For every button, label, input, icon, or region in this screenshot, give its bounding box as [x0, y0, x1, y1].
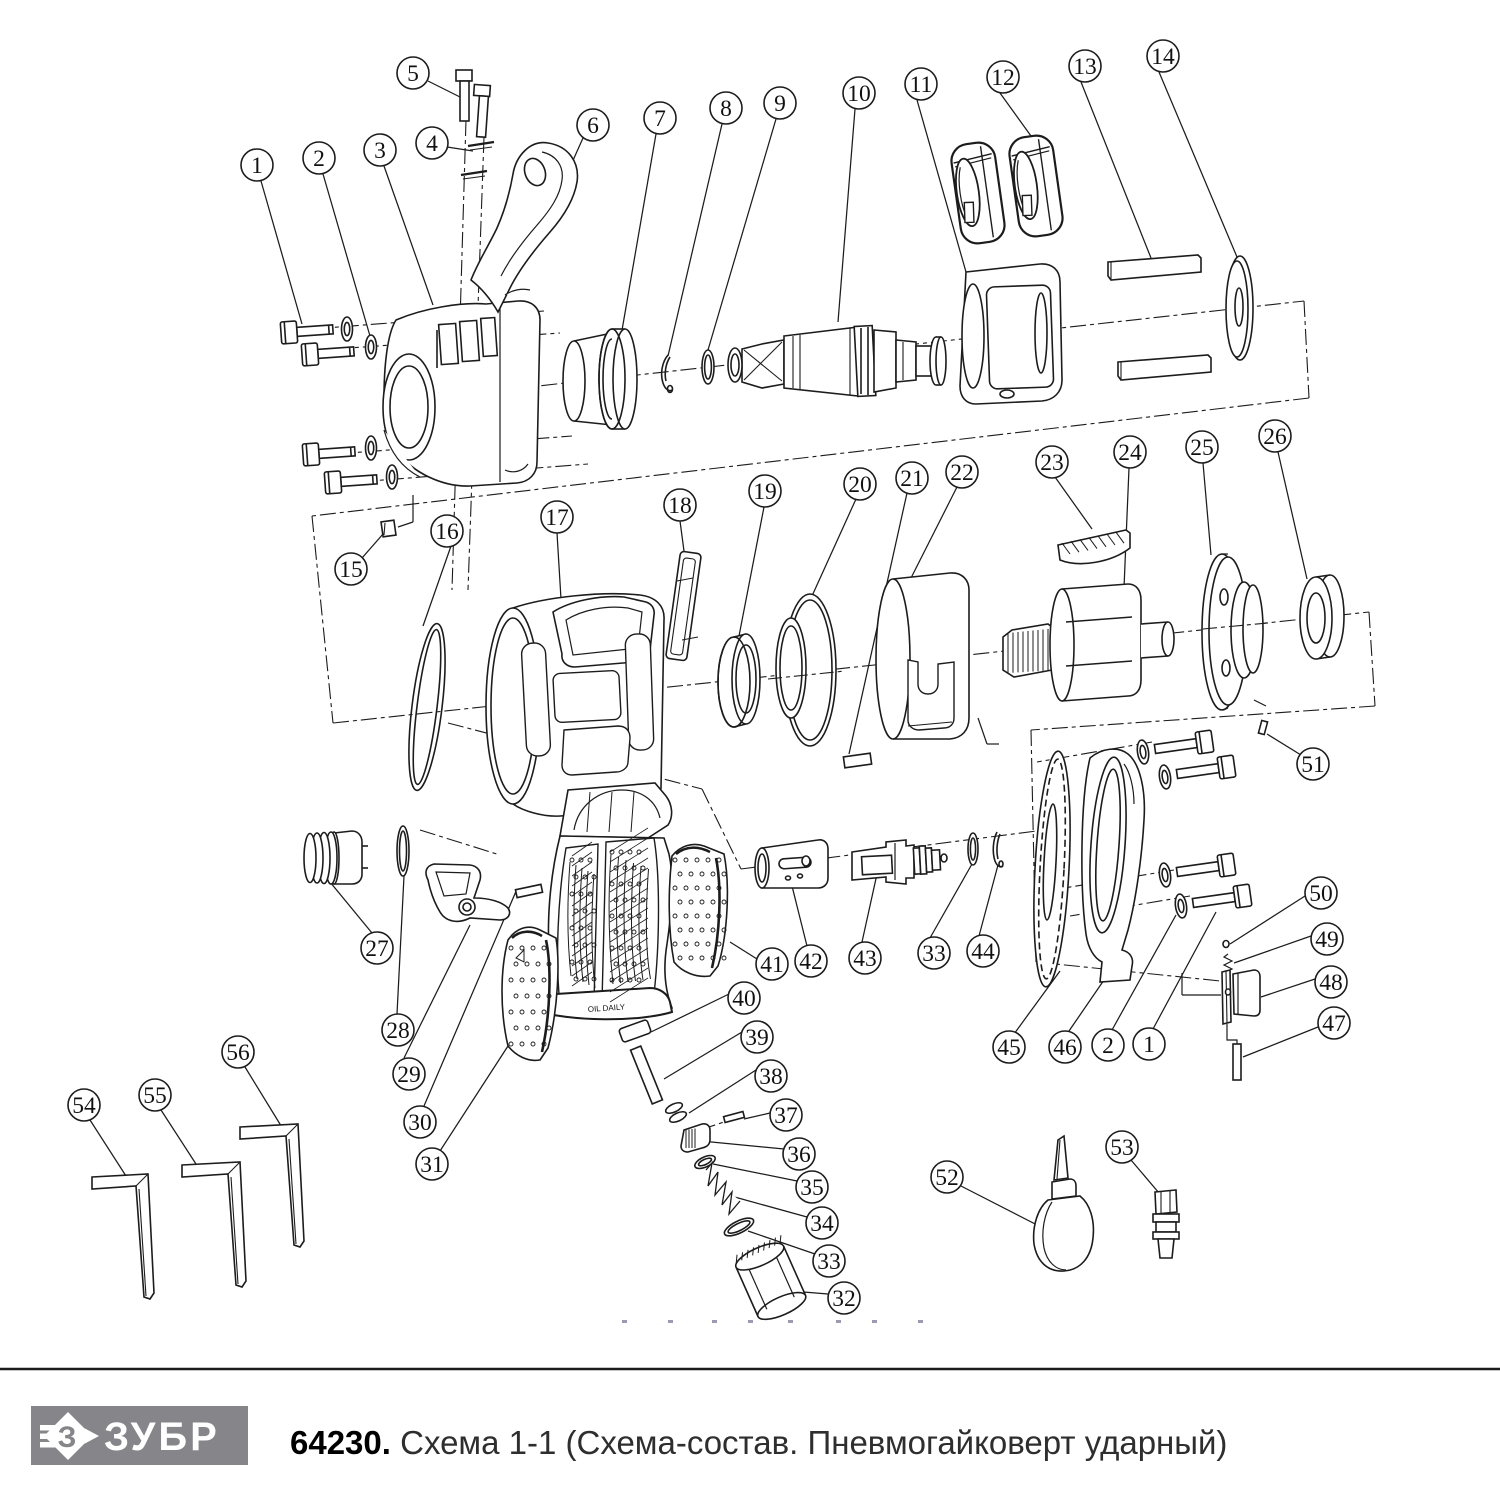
- svg-text:17: 17: [545, 505, 569, 531]
- svg-text:21: 21: [900, 466, 924, 492]
- svg-text:13: 13: [1073, 54, 1097, 80]
- svg-text:40: 40: [732, 986, 756, 1012]
- svg-text:9: 9: [774, 91, 786, 117]
- svg-text:10: 10: [847, 81, 871, 107]
- svg-text:23: 23: [1040, 450, 1064, 476]
- svg-text:56: 56: [226, 1040, 250, 1066]
- svg-text:30: 30: [408, 1110, 432, 1136]
- svg-text:51: 51: [1301, 752, 1325, 778]
- svg-text:7: 7: [654, 106, 666, 132]
- svg-text:50: 50: [1309, 881, 1333, 907]
- svg-text:18: 18: [668, 493, 692, 519]
- svg-text:55: 55: [143, 1083, 167, 1109]
- svg-text:32: 32: [832, 1286, 856, 1312]
- svg-text:52: 52: [935, 1165, 959, 1191]
- svg-text:46: 46: [1053, 1035, 1077, 1061]
- svg-text:З: З: [58, 1421, 77, 1454]
- svg-text:29: 29: [397, 1062, 421, 1088]
- svg-text:44: 44: [971, 939, 995, 965]
- svg-text:12: 12: [991, 65, 1015, 91]
- svg-text:1: 1: [1143, 1032, 1155, 1058]
- svg-text:28: 28: [386, 1018, 410, 1044]
- svg-text:24: 24: [1118, 440, 1142, 466]
- svg-text:2: 2: [1102, 1033, 1114, 1059]
- svg-text:42: 42: [799, 949, 823, 975]
- svg-text:49: 49: [1315, 927, 1339, 953]
- svg-text:3: 3: [374, 138, 386, 164]
- svg-text:31: 31: [420, 1152, 444, 1178]
- svg-text:11: 11: [910, 72, 933, 98]
- svg-text:5: 5: [407, 61, 419, 87]
- svg-text:6: 6: [587, 113, 599, 139]
- svg-text:33: 33: [817, 1249, 841, 1275]
- svg-text:14: 14: [1151, 44, 1175, 70]
- svg-text:33: 33: [922, 941, 946, 967]
- svg-text:4: 4: [426, 131, 438, 157]
- svg-text:34: 34: [810, 1211, 834, 1237]
- svg-text:39: 39: [745, 1025, 769, 1051]
- svg-text:ЗУБР: ЗУБР: [104, 1415, 220, 1459]
- svg-text:53: 53: [1110, 1135, 1134, 1161]
- svg-text:54: 54: [72, 1093, 96, 1119]
- svg-text:47: 47: [1322, 1011, 1346, 1037]
- svg-text:43: 43: [853, 946, 877, 972]
- svg-text:41: 41: [760, 952, 784, 978]
- svg-text:45: 45: [997, 1035, 1021, 1061]
- svg-text:37: 37: [774, 1103, 798, 1129]
- svg-text:2: 2: [313, 146, 325, 172]
- svg-text:22: 22: [950, 460, 974, 486]
- svg-text:38: 38: [759, 1064, 783, 1090]
- svg-text:64230. Схема 1-1 (Схема-состав: 64230. Схема 1-1 (Схема-состав. Пневмога…: [290, 1424, 1227, 1461]
- svg-text:15: 15: [339, 557, 363, 583]
- svg-text:20: 20: [848, 472, 872, 498]
- svg-text:8: 8: [720, 96, 732, 122]
- svg-text:36: 36: [787, 1142, 811, 1168]
- svg-text:1: 1: [251, 153, 263, 179]
- svg-text:19: 19: [753, 479, 777, 505]
- svg-text:27: 27: [365, 936, 389, 962]
- svg-text:35: 35: [800, 1175, 824, 1201]
- svg-text:16: 16: [435, 519, 459, 545]
- svg-text:48: 48: [1319, 970, 1343, 996]
- svg-text:26: 26: [1263, 424, 1287, 450]
- svg-text:25: 25: [1190, 435, 1214, 461]
